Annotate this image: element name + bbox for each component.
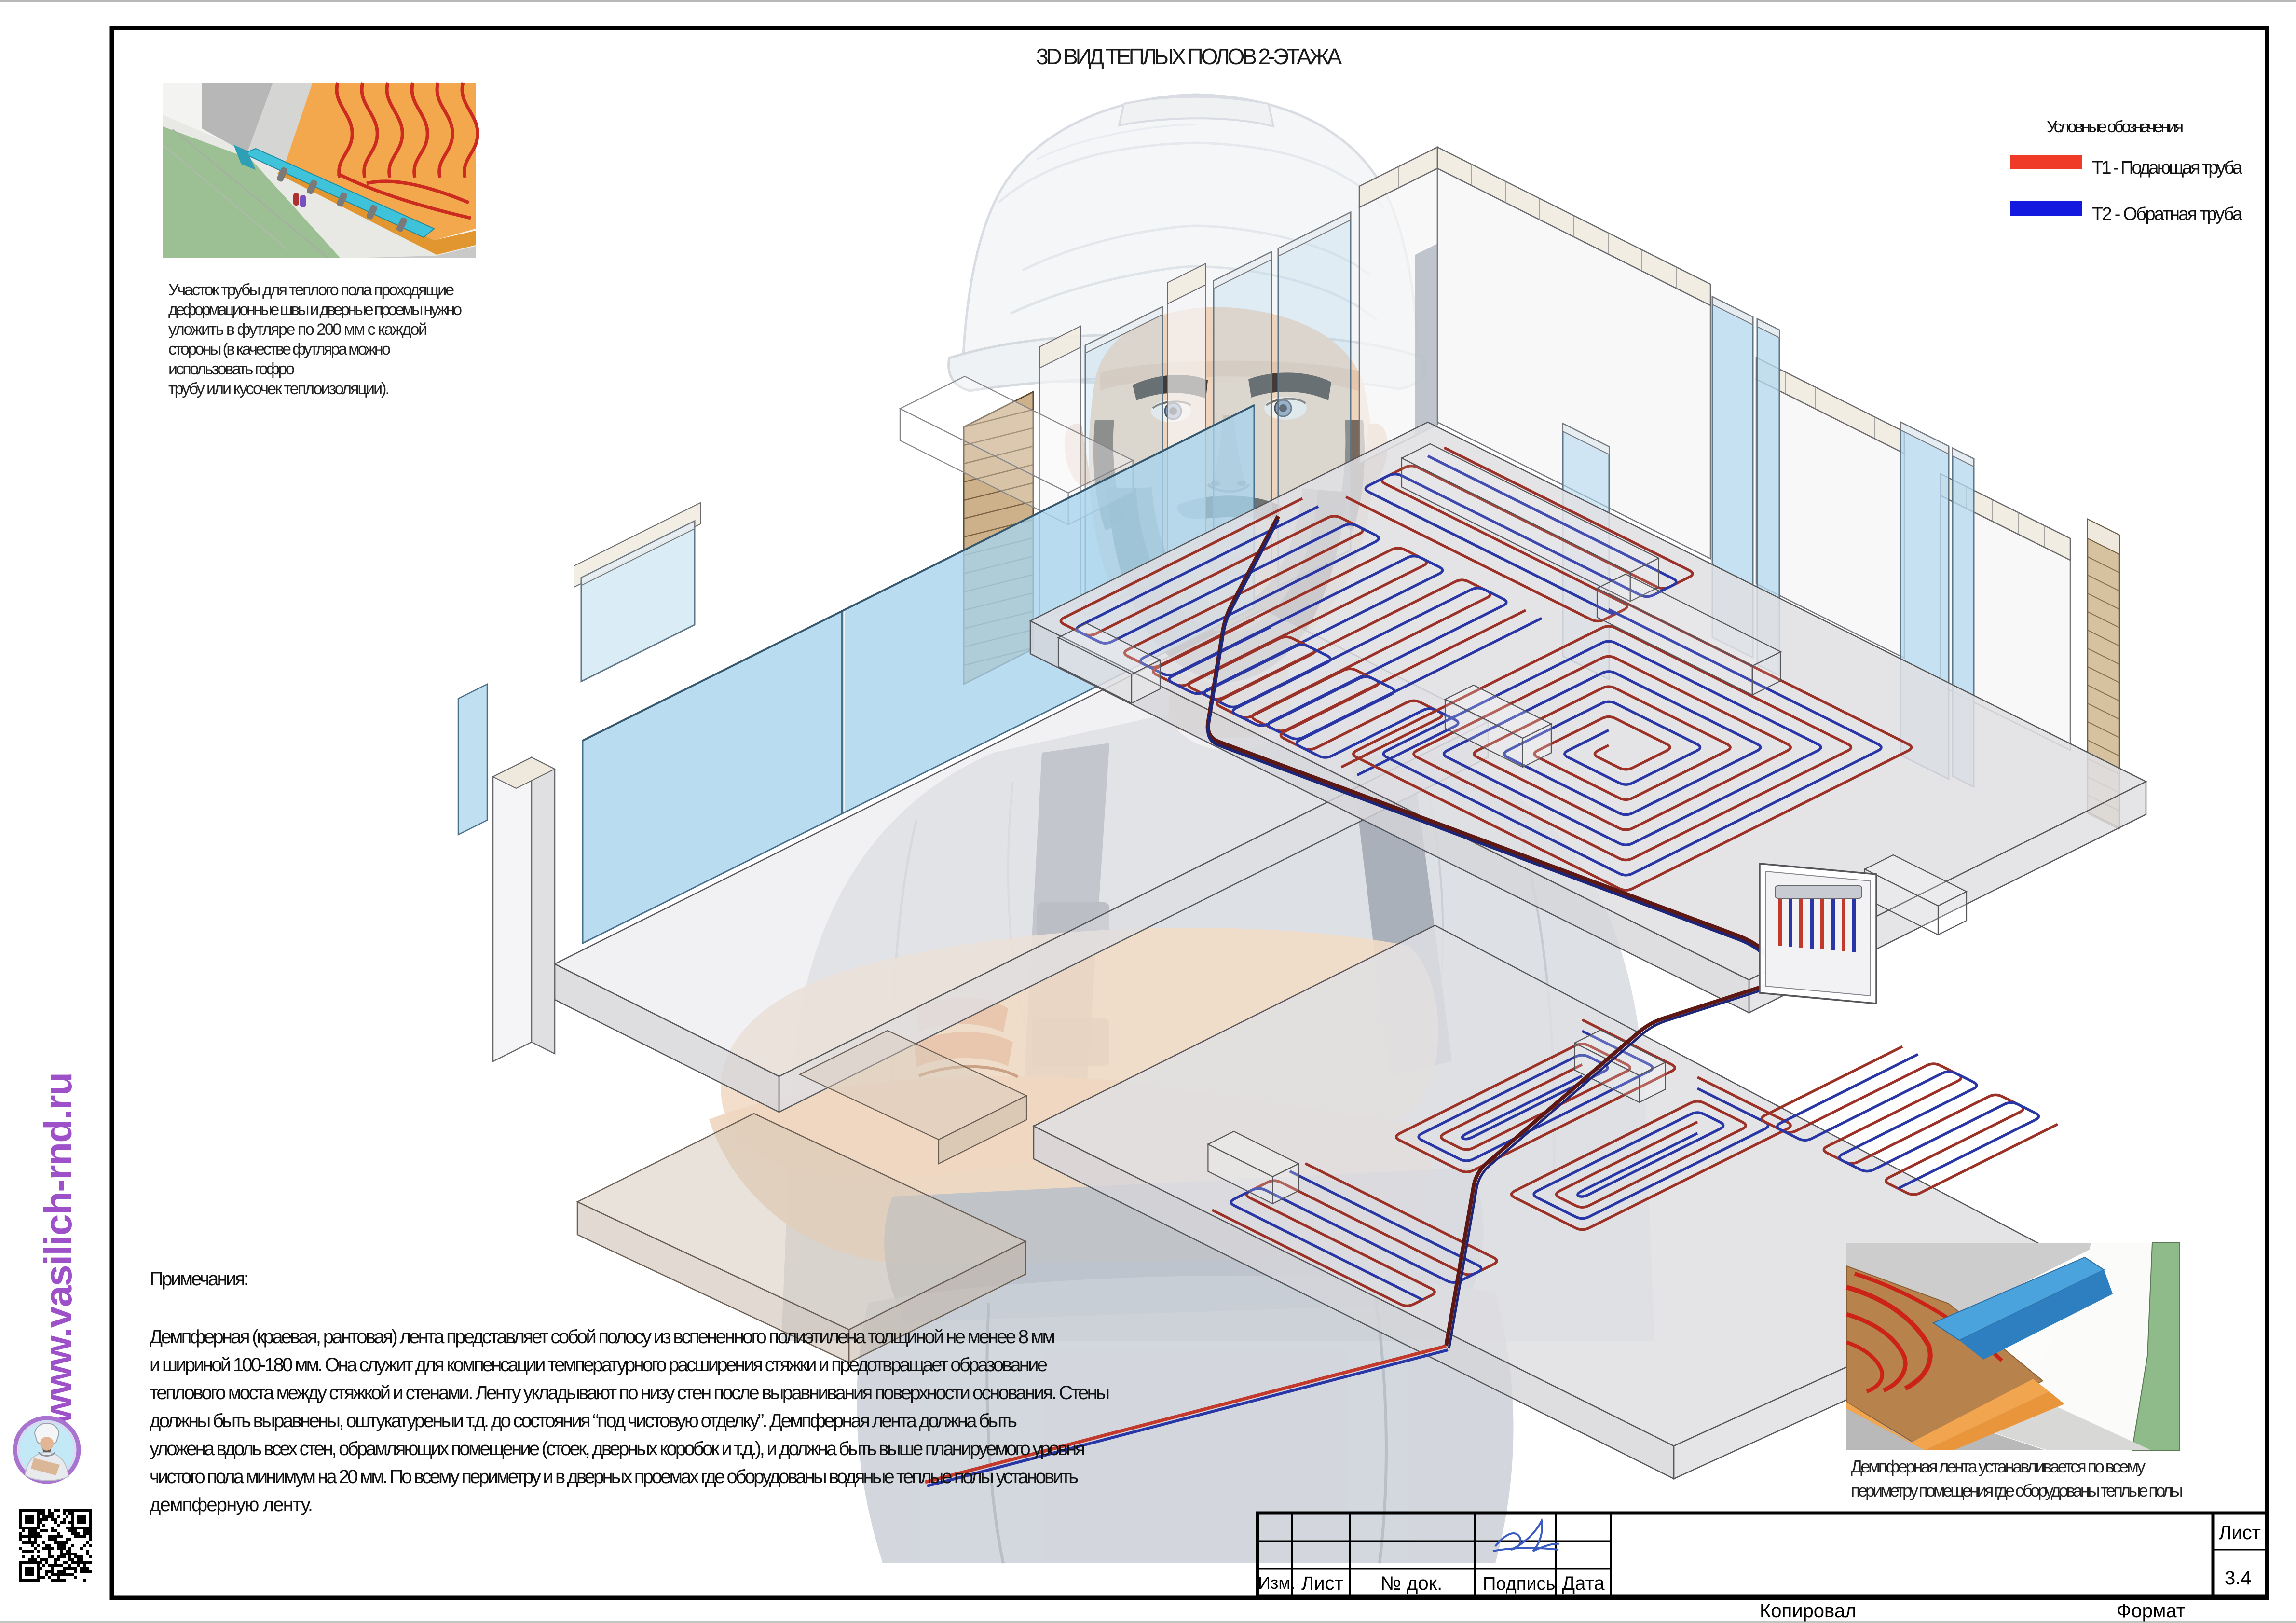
svg-text:Подпись: Подпись <box>1483 1574 1555 1594</box>
svg-text:уложена вдоль всех стен, обрам: уложена вдоль всех стен, обрамляющих пом… <box>150 1438 1085 1459</box>
svg-text:Изм.: Изм. <box>1258 1573 1295 1593</box>
svg-text:периметру помещения где оборуд: периметру помещения где оборудованы тепл… <box>1851 1481 2183 1500</box>
svg-text:чистого пола минимум на 20 мм.: чистого пола минимум на 20 мм. По всему … <box>150 1466 1079 1487</box>
svg-text:Демпферная (краевая, рантовая): Демпферная (краевая, рантовая) лента пре… <box>150 1326 1055 1348</box>
svg-text:Дата: Дата <box>1562 1573 1605 1594</box>
svg-text:Участок трубы для теплого пола: Участок трубы для теплого пола проходящи… <box>168 281 454 299</box>
svg-text:Формат: Формат <box>2117 1600 2185 1622</box>
svg-text:www.vasilich-rnd.ru: www.vasilich-rnd.ru <box>37 1072 80 1425</box>
svg-text:демпферную ленту.: демпферную ленту. <box>150 1494 313 1515</box>
svg-text:3.4: 3.4 <box>2225 1568 2252 1589</box>
svg-text:и шириной 100-180 мм. Она служ: и шириной 100-180 мм. Она служит для ком… <box>150 1354 1048 1375</box>
svg-text:трубу или кусочек теплоизоляци: трубу или кусочек теплоизоляции). <box>168 380 390 398</box>
svg-text:использовать гофро: использовать гофро <box>168 360 295 378</box>
svg-text:Лист: Лист <box>2219 1522 2261 1543</box>
svg-text:Лист: Лист <box>1301 1573 1343 1594</box>
svg-text:деформационные швы и дверные: деформационные швы и дверные проемы нужн… <box>168 301 462 319</box>
svg-text:3D ВИД ТЕПЛЫХ ПОЛОВ 2-ЭТАЖА: 3D ВИД ТЕПЛЫХ ПОЛОВ 2-ЭТАЖА <box>1036 44 1342 69</box>
svg-text:Условные обозначения: Условные обозначения <box>2047 118 2184 136</box>
svg-text:должны быть выравнены, оштукат: должны быть выравнены, оштукатуреныи т.д… <box>150 1410 1017 1431</box>
svg-text:теплового моста между стяжкой: теплового моста между стяжкой и стенами.… <box>150 1382 1110 1403</box>
svg-text:Т1 - Подающая труба: Т1 - Подающая труба <box>2092 158 2243 178</box>
svg-text:Т2 - Обратная труба: Т2 - Обратная труба <box>2092 204 2243 224</box>
svg-text:стороны (в качестве футляра мо: стороны (в качестве футляра можно <box>168 340 391 358</box>
svg-text:Примечания:: Примечания: <box>150 1268 249 1290</box>
svg-text:№ док.: № док. <box>1380 1573 1442 1594</box>
svg-text:Демпферная лента устанавливает: Демпферная лента устанавливается по всем… <box>1851 1457 2146 1476</box>
svg-text:уложить в футляре по 200 мм с: уложить в футляре по 200 мм с каждой <box>168 320 427 339</box>
svg-text:Копировал: Копировал <box>1760 1600 1856 1622</box>
